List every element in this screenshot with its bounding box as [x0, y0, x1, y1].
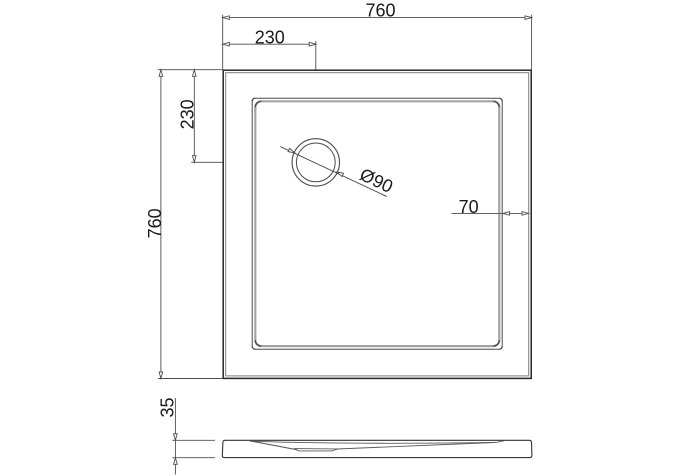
svg-text:230: 230: [255, 27, 285, 47]
svg-text:760: 760: [365, 1, 395, 21]
svg-text:230: 230: [178, 99, 198, 129]
svg-text:35: 35: [157, 397, 177, 417]
svg-text:760: 760: [145, 208, 165, 238]
svg-text:70: 70: [459, 197, 479, 217]
